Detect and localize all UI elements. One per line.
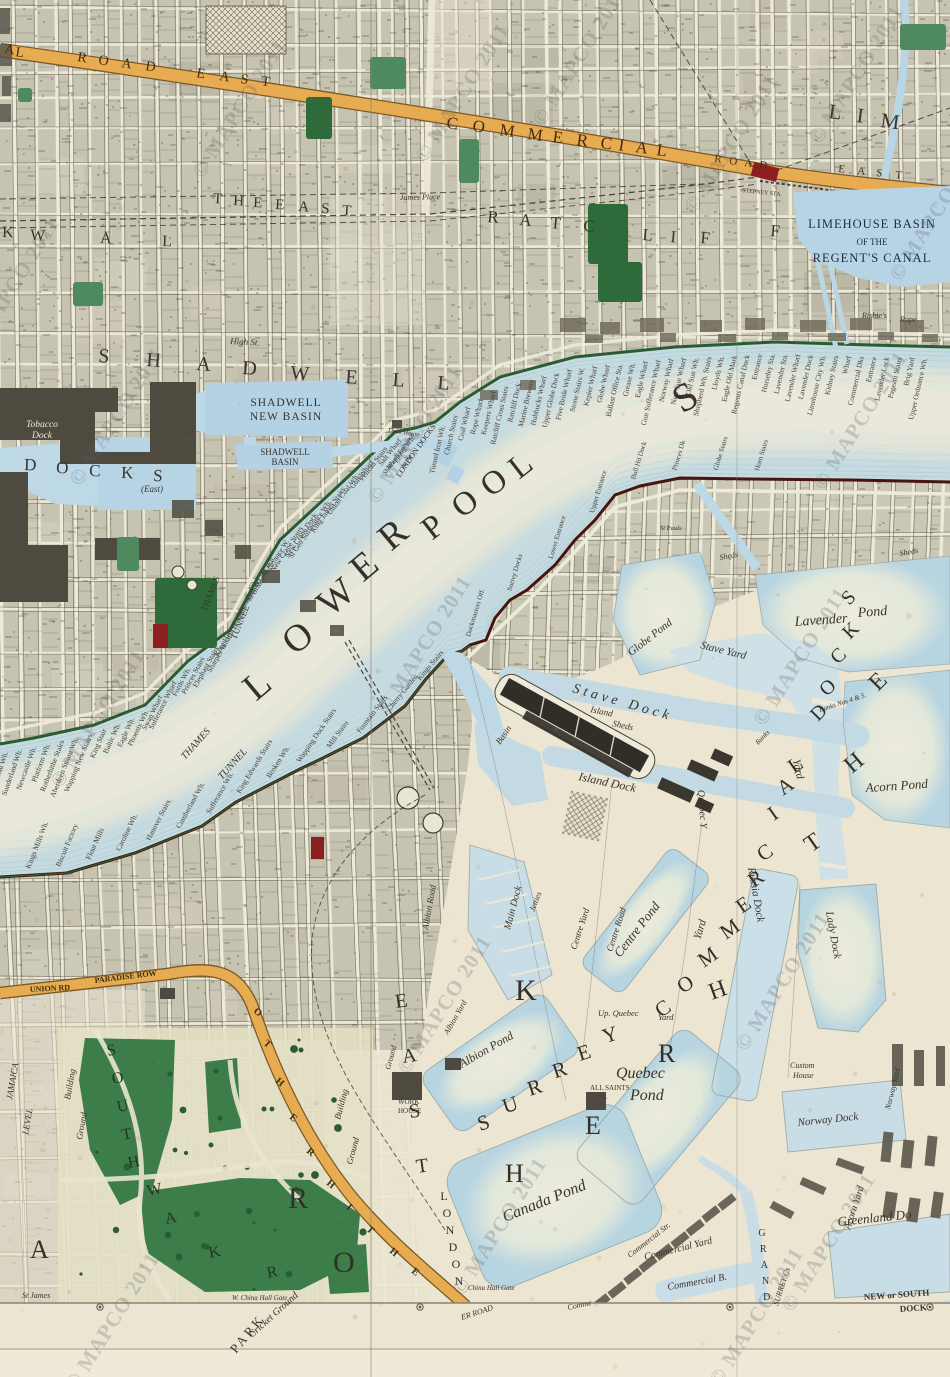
svg-text:G: G	[758, 1228, 765, 1239]
svg-text:A: A	[30, 1235, 49, 1264]
svg-text:A: A	[761, 1260, 769, 1271]
svg-text:O: O	[333, 1246, 355, 1279]
svg-text:S: S	[876, 167, 883, 180]
svg-text:L: L	[440, 1189, 447, 1203]
svg-text:T: T	[342, 203, 352, 219]
svg-text:R: R	[658, 1039, 676, 1068]
svg-text:High St.: High St.	[229, 336, 260, 348]
svg-text:A: A	[857, 165, 866, 178]
svg-text:DOCK: DOCK	[899, 1302, 927, 1314]
svg-text:BASIN: BASIN	[271, 457, 299, 467]
svg-text:L: L	[392, 369, 406, 392]
svg-text:M: M	[498, 120, 516, 141]
svg-text:House: House	[792, 1071, 814, 1080]
svg-text:A: A	[519, 210, 534, 230]
svg-text:Risbie's: Risbie's	[861, 311, 887, 320]
svg-text:O: O	[443, 1206, 452, 1220]
svg-text:SHADWELL: SHADWELL	[260, 447, 310, 457]
svg-text:W. China Hall Gate: W. China Hall Gate	[232, 1294, 287, 1302]
svg-text:ALL SAINTS: ALL SAINTS	[590, 1084, 630, 1092]
svg-text:OF THE: OF THE	[856, 237, 888, 247]
svg-text:L: L	[162, 233, 172, 250]
svg-text:D: D	[449, 1240, 458, 1254]
svg-text:St James: St James	[22, 1291, 50, 1300]
svg-text:Pond: Pond	[856, 604, 889, 621]
svg-text:A: A	[744, 157, 753, 170]
svg-text:D: D	[759, 159, 768, 172]
svg-text:NEW BASIN: NEW BASIN	[250, 411, 322, 423]
svg-text:T: T	[213, 191, 223, 207]
svg-text:Rope: Rope	[899, 315, 917, 324]
svg-text:E: E	[585, 1111, 601, 1140]
svg-text:R: R	[760, 1244, 767, 1255]
svg-text:M: M	[879, 108, 901, 134]
svg-text:Quebec: Quebec	[616, 1065, 665, 1082]
svg-text:SHADWELL: SHADWELL	[250, 397, 321, 409]
svg-text:HOUSE: HOUSE	[398, 1107, 421, 1115]
svg-text:F: F	[700, 228, 711, 248]
svg-text:A: A	[196, 353, 212, 376]
svg-text:S: S	[153, 466, 163, 485]
svg-text:A: A	[100, 230, 113, 247]
svg-text:Up. Quebec: Up. Quebec	[598, 1008, 639, 1018]
svg-text:(East): (East)	[141, 484, 163, 494]
svg-text:N: N	[446, 1223, 455, 1237]
svg-text:K: K	[121, 463, 135, 482]
svg-text:E: E	[253, 195, 263, 211]
svg-text:O: O	[471, 116, 486, 137]
svg-text:Pond: Pond	[629, 1087, 665, 1104]
svg-text:H: H	[233, 193, 245, 210]
svg-text:F: F	[770, 221, 781, 241]
svg-text:Custom: Custom	[790, 1061, 815, 1070]
svg-text:L: L	[642, 225, 654, 245]
svg-text:Dock: Dock	[31, 431, 53, 441]
svg-text:Yard: Yard	[658, 1012, 674, 1022]
svg-text:K: K	[515, 974, 537, 1007]
svg-text:Tobacco: Tobacco	[26, 420, 58, 430]
svg-text:C: C	[583, 216, 596, 236]
svg-text:James Place: James Place	[400, 192, 441, 202]
svg-text:W: W	[290, 362, 310, 385]
svg-text:D: D	[242, 357, 258, 380]
svg-text:S: S	[98, 345, 111, 368]
svg-text:D: D	[24, 455, 37, 474]
svg-text:K: K	[2, 224, 15, 241]
svg-text:E: E	[275, 197, 285, 213]
svg-text:S: S	[321, 201, 330, 217]
svg-text:E: E	[345, 366, 359, 389]
svg-text:R: R	[288, 1182, 308, 1215]
svg-text:St Pauls: St Pauls	[660, 525, 682, 532]
